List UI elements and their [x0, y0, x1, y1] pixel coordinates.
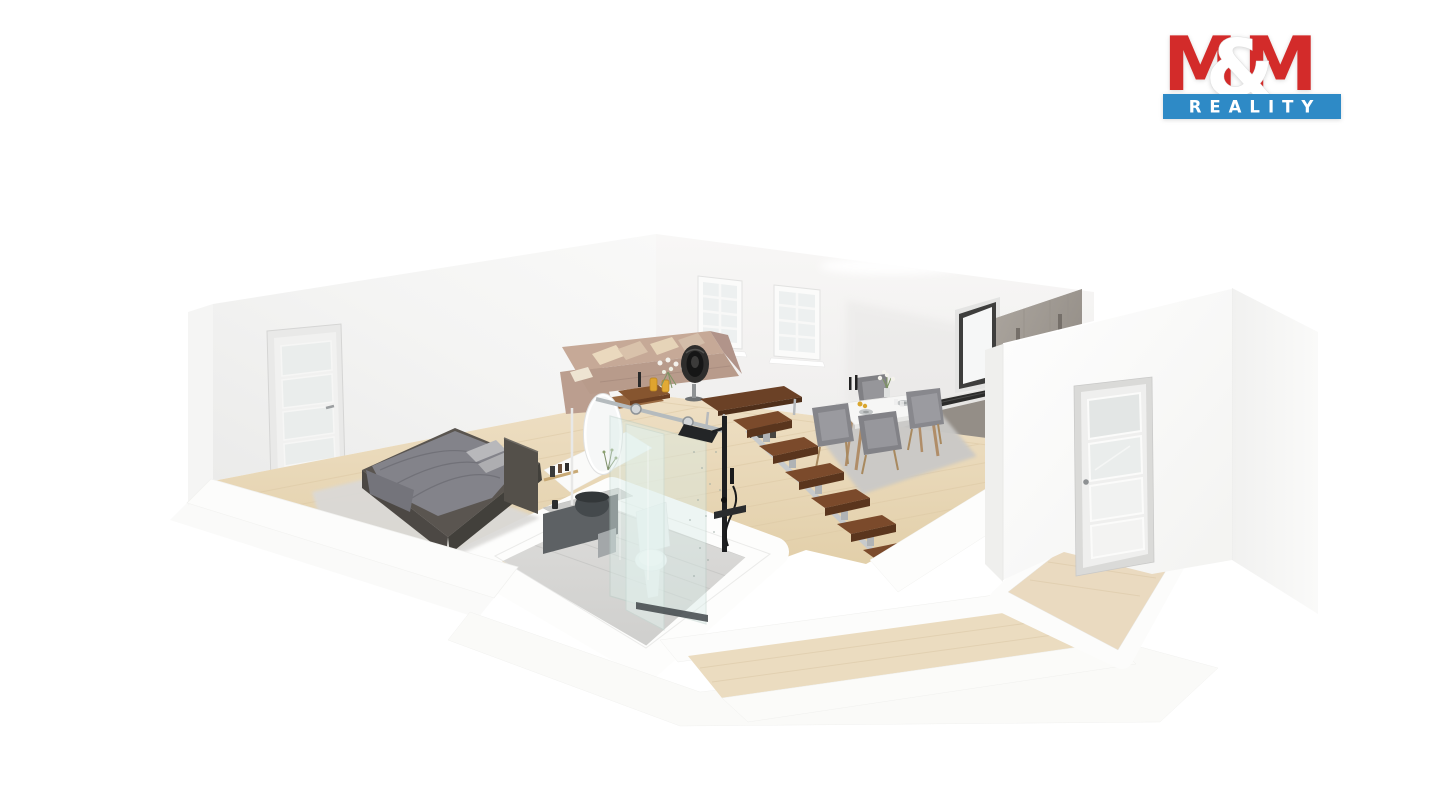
logo-graphic: M M & REALITY — [1163, 30, 1353, 130]
fan-hub — [691, 356, 699, 368]
mm-reality-logo: M M & REALITY — [1163, 30, 1353, 130]
black-jar — [552, 500, 558, 509]
ceiling-light-glow — [820, 257, 964, 275]
shower-valve — [721, 497, 727, 503]
right-outer-wall — [1232, 288, 1318, 614]
partition-side-face — [985, 344, 1003, 582]
left-wall-outer-edge — [188, 304, 213, 506]
logo-reality-text: REALITY — [1189, 98, 1322, 117]
hand-shower — [730, 468, 734, 484]
fan-stand — [692, 384, 696, 398]
shower-glass-front — [626, 424, 664, 630]
black-candle — [638, 372, 641, 387]
vessel-sink-rim — [575, 492, 609, 503]
screenshot-canvas: M M & REALITY — [0, 0, 1440, 810]
amber-glass — [650, 378, 657, 391]
door-handle — [1083, 479, 1089, 485]
entry-door — [1074, 377, 1154, 576]
rail-roller — [631, 404, 641, 414]
back-wall-window-2 — [769, 285, 825, 367]
